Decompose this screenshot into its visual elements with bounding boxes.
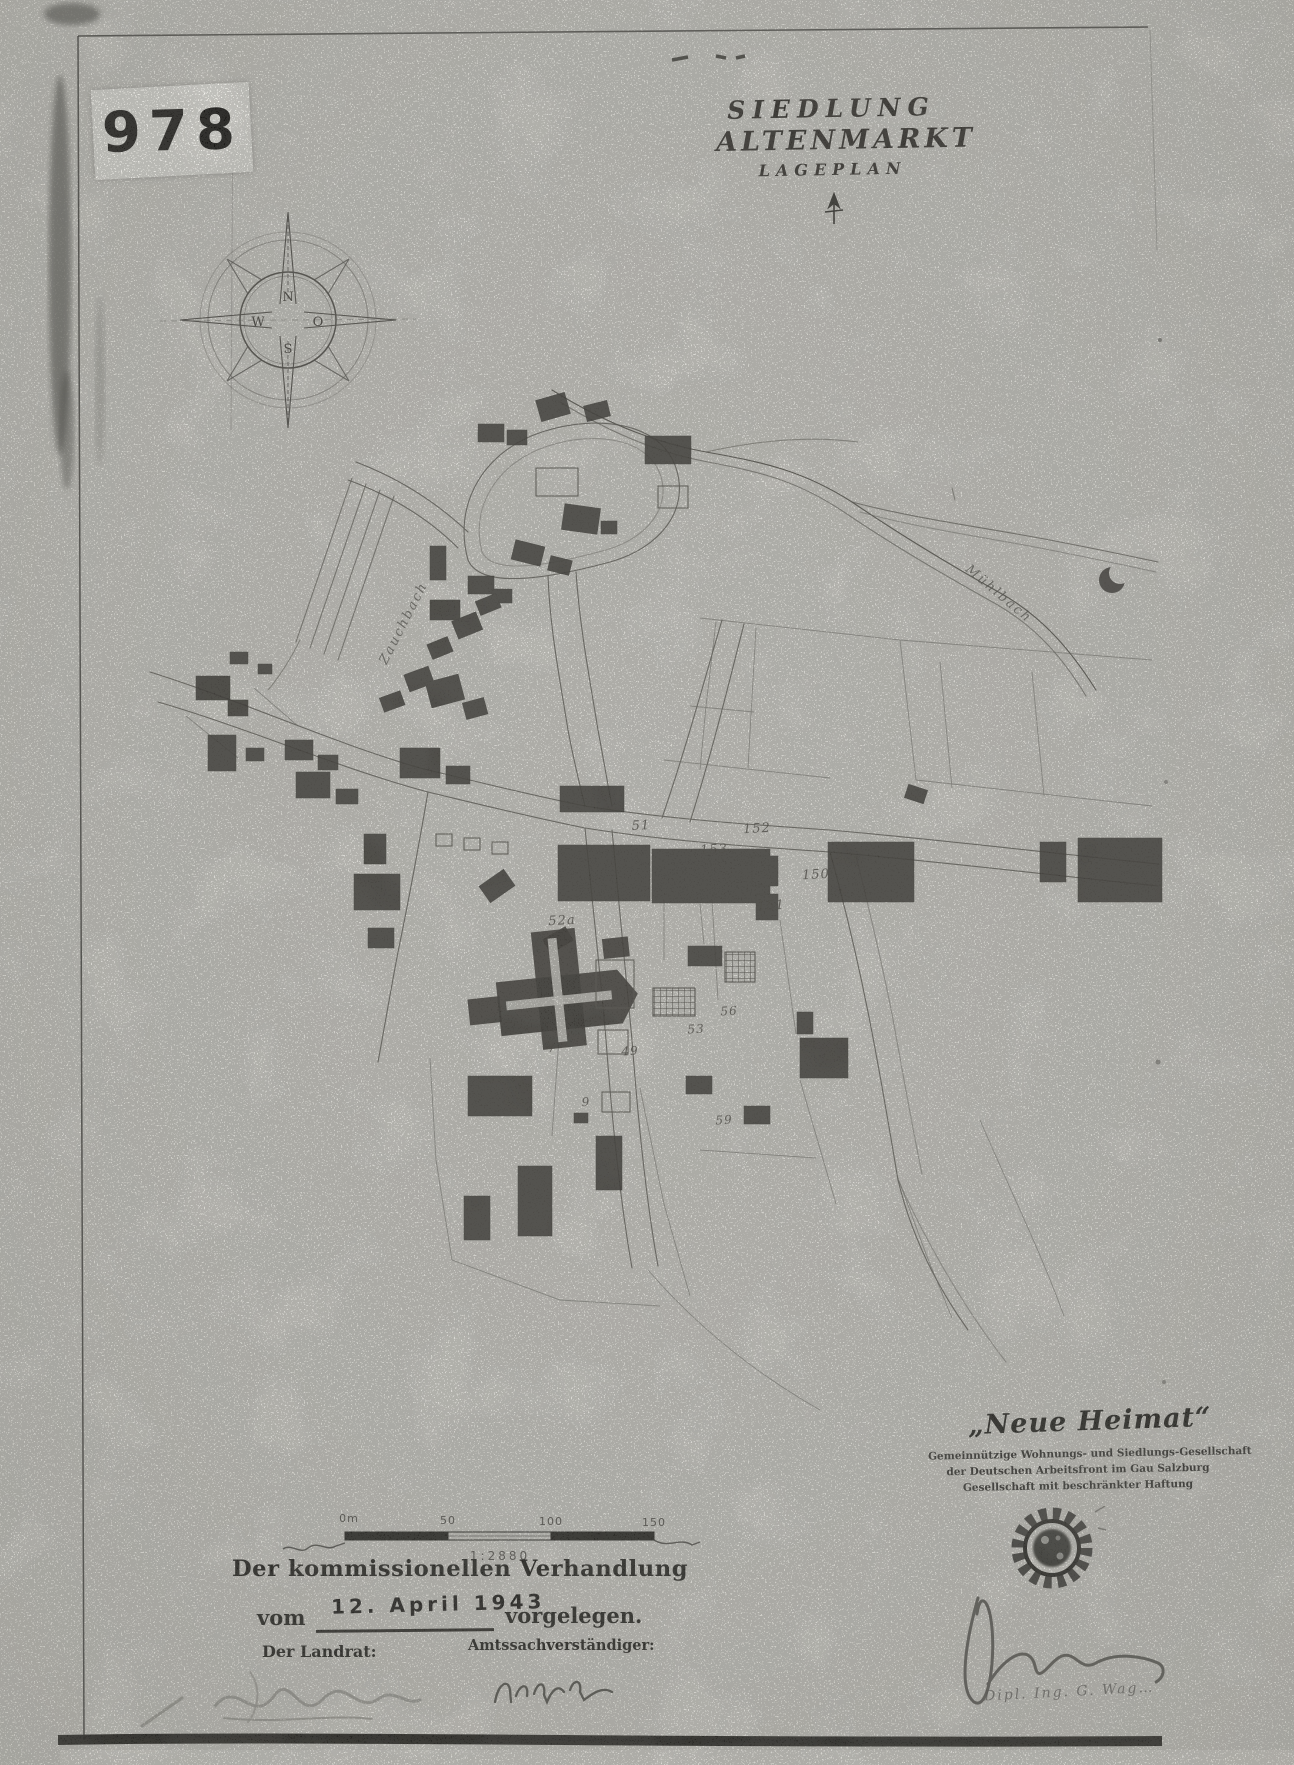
parcel-number: 52a bbox=[548, 913, 576, 929]
archive-sticker: 978 bbox=[91, 82, 253, 180]
date-underline bbox=[316, 1628, 494, 1633]
parcel-number: 9 bbox=[581, 1095, 590, 1109]
certification-line: Der kommissionellen Verhandlung bbox=[232, 1556, 688, 1582]
text-layer: 978 SIEDLUNG ALTENMARKT LAGEPLAN Zauchba… bbox=[0, 0, 1294, 1765]
title-line-1: SIEDLUNG bbox=[715, 92, 947, 125]
parcel-number: 7 bbox=[547, 1041, 556, 1055]
parcel-number: 150 bbox=[802, 867, 831, 883]
parcel-number: 55 bbox=[799, 1036, 817, 1051]
scanned-map-page: N O S W bbox=[0, 0, 1294, 1765]
scale-tick-0: 0m bbox=[339, 1512, 359, 1525]
stream-label-muehlbach: Mühlbach bbox=[962, 562, 1034, 626]
scale-tick-150: 150 bbox=[642, 1516, 666, 1529]
neue-heimat-line-3: der Deutschen Arbeitsfront im Gau Salzbu… bbox=[928, 1461, 1228, 1478]
signature-caption: Dipl. Ing. G. Wag… bbox=[984, 1680, 1155, 1705]
neue-heimat-line-2: Gemeinnützige Wohnungs- und Siedlungs-Ge… bbox=[928, 1445, 1228, 1462]
parcel-number: 152 bbox=[743, 821, 772, 837]
scale-tick-50: 50 bbox=[440, 1514, 456, 1527]
neue-heimat-name: „Neue Heimat“ bbox=[968, 1402, 1213, 1441]
landrat-label: Der Landrat: bbox=[262, 1642, 377, 1661]
parcel-number: 49 bbox=[621, 1044, 639, 1059]
archive-number: 978 bbox=[101, 97, 244, 166]
stream-label-left: Zauchbach bbox=[377, 580, 431, 667]
neue-heimat-line-4: Gesellschaft mit beschränkter Haftung bbox=[928, 1477, 1228, 1494]
amtssachverstaendiger-label: Amtssachverständiger: bbox=[468, 1637, 654, 1654]
certification-vorgelegen: vorgelegen. bbox=[505, 1603, 642, 1628]
parcel-number: 151 bbox=[757, 898, 786, 914]
parcel-number: 51 bbox=[631, 818, 650, 834]
parcel-number: 53 bbox=[687, 1022, 705, 1037]
scale-tick-100: 100 bbox=[539, 1515, 563, 1528]
title-line-2: ALTENMARKT bbox=[716, 123, 949, 158]
certification-vom: vom bbox=[257, 1605, 305, 1630]
title-line-3: LAGEPLAN bbox=[716, 158, 948, 181]
parcel-number: 56 bbox=[720, 1004, 738, 1019]
parcel-number: 59 bbox=[715, 1113, 733, 1128]
parcel-number: 153 bbox=[700, 842, 729, 858]
map-title: SIEDLUNG ALTENMARKT LAGEPLAN bbox=[715, 92, 948, 181]
